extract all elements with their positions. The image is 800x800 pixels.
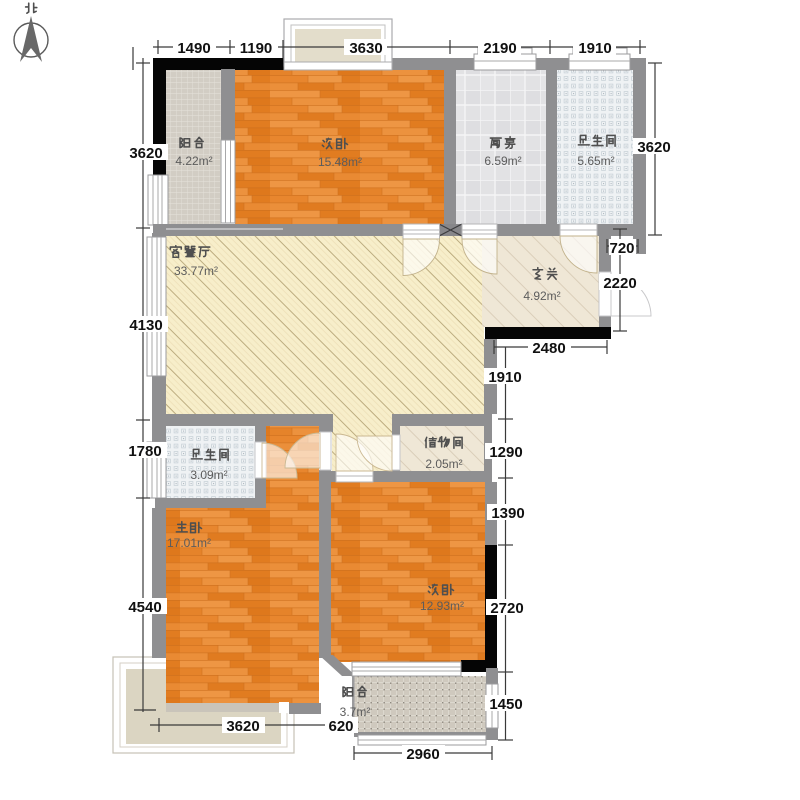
svg-text:1290: 1290 [489,444,522,461]
svg-text:3620: 3620 [226,718,259,735]
svg-text:620: 620 [328,718,353,735]
svg-text:1910: 1910 [488,369,521,386]
svg-text:15.48m²: 15.48m² [318,155,362,169]
svg-text:1910: 1910 [578,40,611,57]
svg-text:2720: 2720 [490,600,523,617]
svg-text:2220: 2220 [603,275,636,292]
svg-text:3620: 3620 [129,145,162,162]
svg-text:2480: 2480 [532,340,565,357]
svg-text:4.92m²: 4.92m² [523,289,560,303]
svg-text:6.59m²: 6.59m² [484,154,521,168]
svg-text:4130: 4130 [129,317,162,334]
svg-text:2960: 2960 [406,746,439,763]
svg-text:1190: 1190 [240,40,273,57]
svg-text:4540: 4540 [128,599,161,616]
svg-text:4.22m²: 4.22m² [175,154,212,168]
svg-text:1390: 1390 [491,505,524,522]
svg-text:3620: 3620 [637,139,670,156]
svg-text:3.7m²: 3.7m² [340,705,371,719]
svg-text:2190: 2190 [483,40,516,57]
svg-text:1450: 1450 [489,696,522,713]
svg-text:3630: 3630 [349,40,382,57]
svg-text:720: 720 [609,240,634,257]
svg-text:12.93m²: 12.93m² [420,599,464,613]
svg-text:17.01m²: 17.01m² [167,536,211,550]
svg-text:1490: 1490 [177,40,210,57]
svg-text:33.77m²: 33.77m² [174,264,218,278]
svg-text:1780: 1780 [128,443,161,460]
svg-text:5.65m²: 5.65m² [577,154,614,168]
svg-text:3.09m²: 3.09m² [190,468,227,482]
svg-text:2.05m²: 2.05m² [425,457,462,471]
